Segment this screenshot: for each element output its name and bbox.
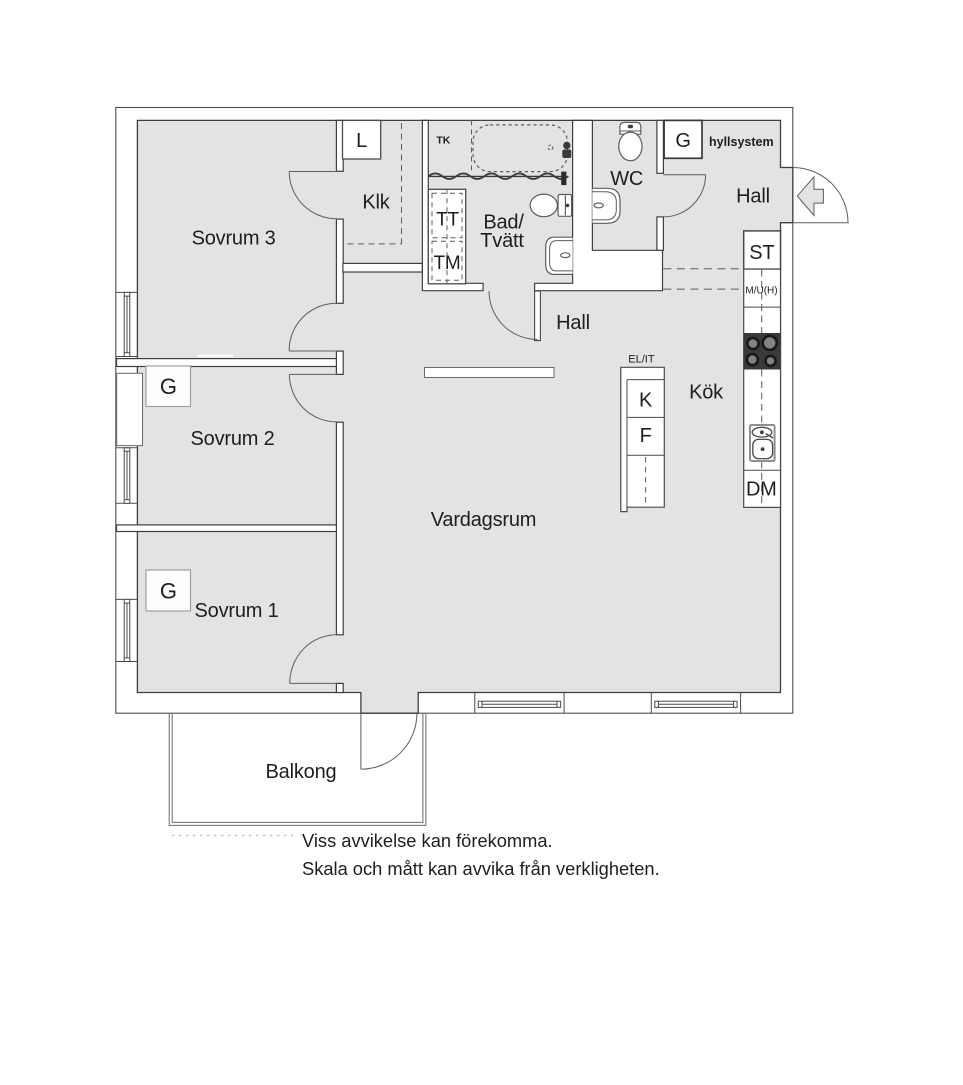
svg-text:F: F <box>640 425 652 447</box>
svg-text:TM: TM <box>433 253 460 274</box>
svg-text:Hall: Hall <box>736 186 770 208</box>
svg-text:Klk: Klk <box>362 192 390 214</box>
svg-text:Sovrum 1: Sovrum 1 <box>195 600 279 622</box>
svg-text:ST: ST <box>749 242 774 264</box>
svg-text:EL/IT: EL/IT <box>628 354 655 366</box>
svg-text:Skala och mått kan avvika från: Skala och mått kan avvika från verklighe… <box>302 858 660 879</box>
svg-text:L: L <box>356 130 367 152</box>
svg-text:K: K <box>639 390 653 412</box>
svg-text:Sovrum 2: Sovrum 2 <box>191 428 275 450</box>
svg-text:Kök: Kök <box>689 382 724 404</box>
svg-text:Tvätt: Tvätt <box>480 230 524 252</box>
svg-text:WC: WC <box>610 168 643 190</box>
svg-text:hyllsystem: hyllsystem <box>709 135 774 149</box>
svg-text:Balkong: Balkong <box>266 761 337 783</box>
svg-text:G: G <box>160 374 177 399</box>
svg-text:M/U(H): M/U(H) <box>745 286 777 297</box>
svg-text:TT: TT <box>436 209 459 230</box>
svg-text:Viss avvikelse kan förekomma.: Viss avvikelse kan förekomma. <box>302 830 553 851</box>
svg-text:Sovrum 3: Sovrum 3 <box>192 227 276 249</box>
svg-text:G: G <box>160 579 177 604</box>
svg-text:Hall: Hall <box>556 312 590 334</box>
svg-text:G: G <box>675 130 690 152</box>
svg-text:TK: TK <box>436 134 450 146</box>
svg-text:Vardagsrum: Vardagsrum <box>431 509 536 531</box>
svg-text:DM: DM <box>746 478 777 500</box>
